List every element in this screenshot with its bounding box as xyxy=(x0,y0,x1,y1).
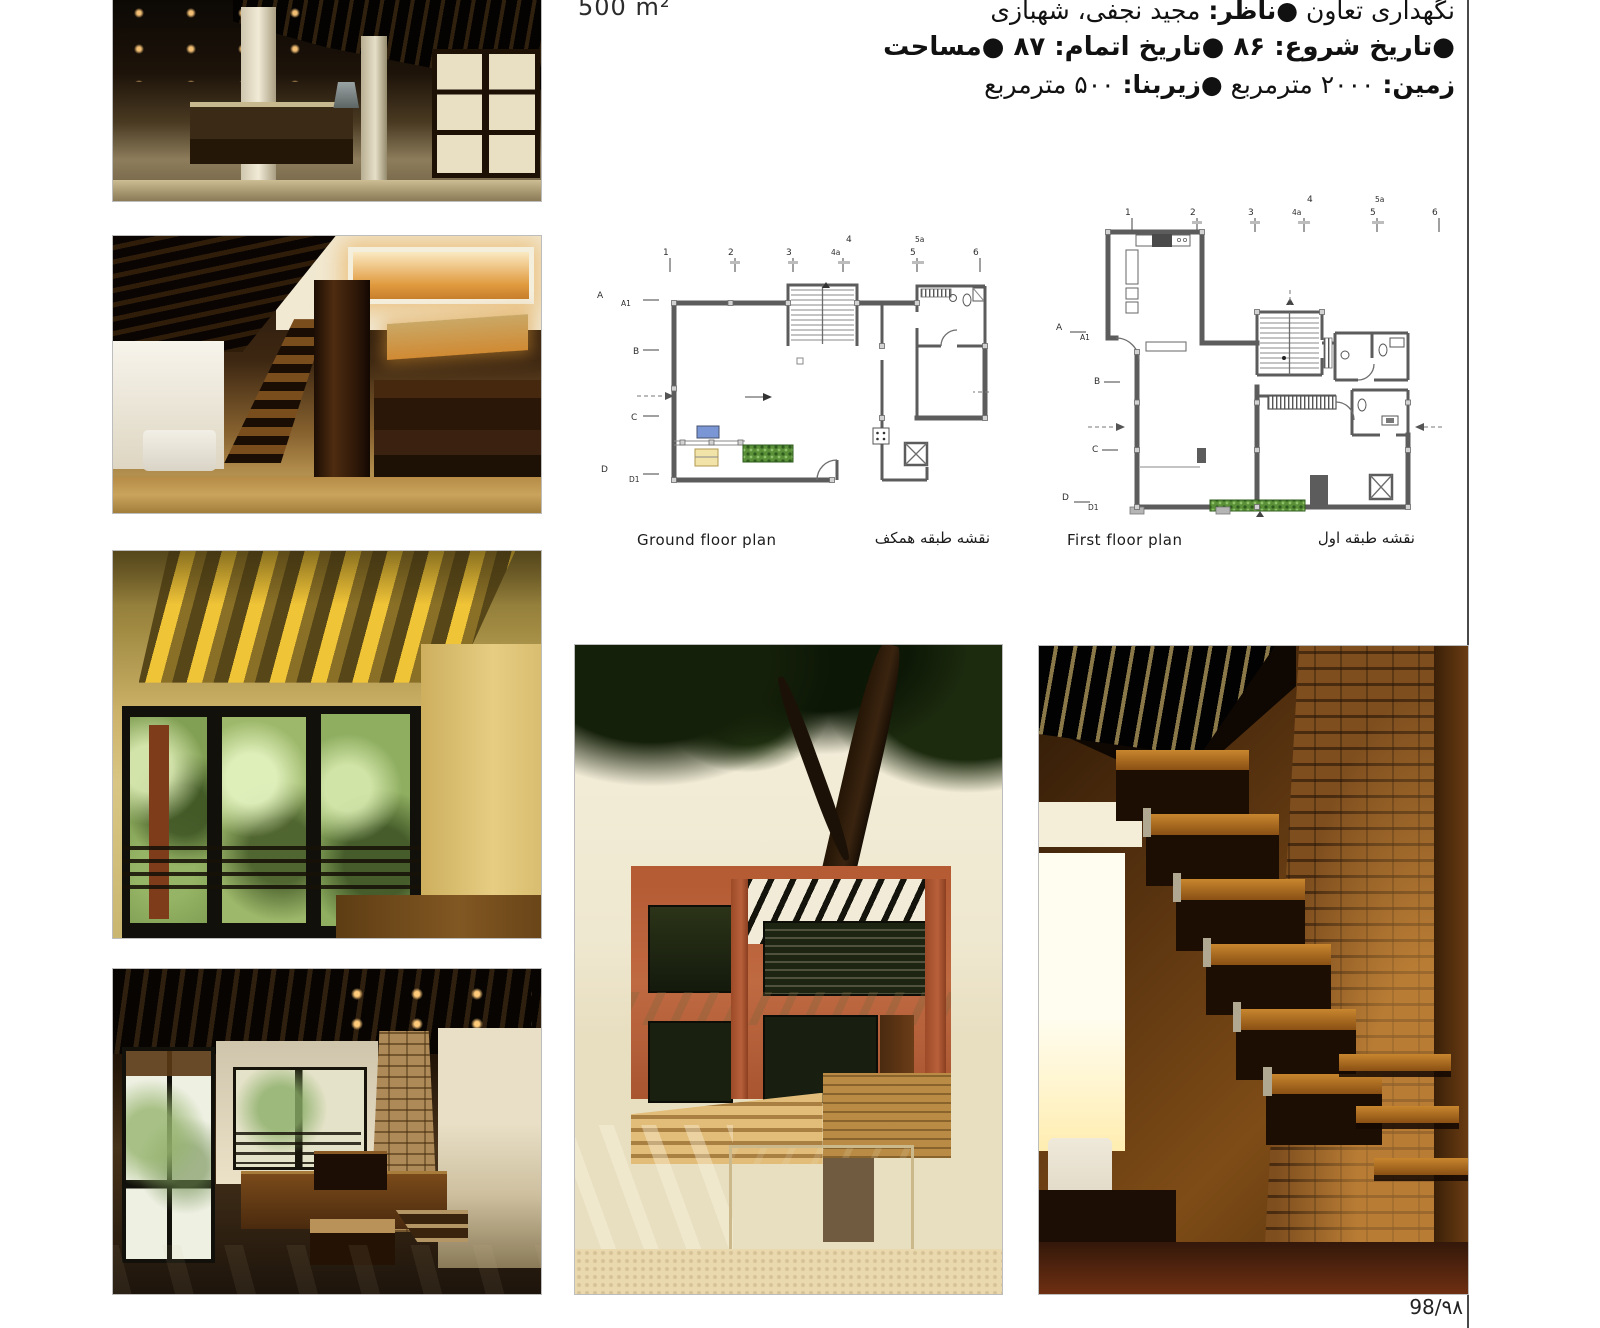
credits-line3-value2: ۵۰۰ مترمربع xyxy=(984,70,1122,99)
section-marker-right xyxy=(1415,423,1442,431)
wood-floor xyxy=(336,895,541,938)
grid-label: D1 xyxy=(1088,503,1099,512)
grid-ticks-top: 1 2 3 4a 4 5a 5 6 xyxy=(663,235,980,272)
planter xyxy=(743,445,793,462)
credits-line1-label: ●ناظر: xyxy=(1208,0,1298,25)
ac-unit xyxy=(143,430,216,472)
door-swing xyxy=(817,460,837,480)
balcony-railing xyxy=(122,837,422,895)
upper-window-left xyxy=(648,905,733,993)
ground-plan-caption-en: Ground floor plan xyxy=(637,531,777,549)
credits-line-3: زمین: ۲۰۰۰ مترمربع ●زیربنا: ۵۰۰ مترمربع xyxy=(990,66,1455,103)
upper-window-right xyxy=(763,921,929,996)
steel-tab xyxy=(1143,808,1152,837)
footing xyxy=(1216,507,1230,514)
kitchen-fixtures xyxy=(1116,234,1190,361)
ceiling-shadow xyxy=(113,551,541,605)
tree-canopy xyxy=(575,645,1002,866)
grid-label: 4 xyxy=(1307,195,1313,205)
steel-tab xyxy=(1173,873,1182,902)
credits-line1-names: مجید نجفی، شهبازی xyxy=(990,0,1208,25)
level-marker xyxy=(745,393,772,401)
stair-tread xyxy=(1176,879,1305,900)
column-marker xyxy=(797,358,803,364)
lower-window-left xyxy=(648,1021,733,1103)
grid-label: 3 xyxy=(786,248,792,258)
stair-tread xyxy=(1116,750,1249,771)
stair-riser xyxy=(1116,769,1249,821)
grid-ticks-left: A A1 B C D D1 xyxy=(597,291,674,484)
first-plan-caption-en: First floor plan xyxy=(1067,531,1182,549)
grid-ticks-top: 1 2 3 4a 4 5a 5 6 xyxy=(1125,195,1439,232)
photo-staircase-underside xyxy=(1038,645,1469,1295)
grid-label: 1 xyxy=(1125,208,1131,218)
grid-label: 5a xyxy=(1375,195,1384,204)
steel-tab xyxy=(1203,938,1212,967)
stair-riser xyxy=(1176,899,1305,951)
red-column-right xyxy=(925,879,946,1100)
glossy-floor xyxy=(113,1245,541,1294)
grid-label: 5 xyxy=(910,248,916,258)
wood-cabinet xyxy=(374,380,541,480)
floor xyxy=(113,180,541,201)
grid-label: 5 xyxy=(1370,208,1376,218)
grid-label: A1 xyxy=(621,299,631,308)
kitchen-cabinets xyxy=(190,102,353,164)
grid-label: B xyxy=(633,347,639,357)
photo-kitchen-interior xyxy=(112,0,542,202)
pool-reflection xyxy=(823,1158,874,1242)
ground-plan-caption-fa: نقشه طبقه همکف xyxy=(850,529,990,547)
grid-label: 5a xyxy=(915,235,924,244)
walls xyxy=(1108,232,1408,507)
grid-label: 3 xyxy=(1248,208,1254,218)
bright-window xyxy=(1039,853,1125,1151)
first-plan-caption-fa: نقشه طبقه اول xyxy=(1285,529,1415,547)
first-floor-plan-drawing: 1 2 3 4a 4 5a 5 6 A A1 B C D D1 xyxy=(1040,190,1445,520)
left-window xyxy=(122,1047,216,1263)
stair-tread xyxy=(1266,1074,1382,1095)
cove-light-upper xyxy=(348,247,533,304)
column-markers xyxy=(672,301,988,483)
grid-label: 6 xyxy=(973,248,979,258)
grid-label: 4a xyxy=(831,248,840,257)
stair-tread xyxy=(1146,814,1279,835)
blue-furniture xyxy=(697,426,719,438)
column-right xyxy=(361,36,387,201)
stair-tread xyxy=(1206,944,1330,965)
photo-exterior-pool xyxy=(574,644,1003,1295)
stair-tread xyxy=(1236,1009,1356,1030)
stair-riser xyxy=(1206,964,1330,1016)
right-wall xyxy=(421,644,541,938)
wood-floor xyxy=(113,477,541,513)
staircase xyxy=(791,282,854,344)
grid-label: 1 xyxy=(663,248,669,258)
photo-stone-wall-lounge xyxy=(112,968,542,1295)
grid-label: A xyxy=(597,291,604,301)
grid-label: D1 xyxy=(629,475,640,484)
project-credits: نگهداری تعاون ●ناظر: مجید نجفی، شهبازی ●… xyxy=(990,0,1455,103)
credits-line1-pre: نگهداری تعاون xyxy=(1298,0,1455,25)
grid-label: 4 xyxy=(846,235,852,245)
grid-label: 2 xyxy=(728,248,734,258)
credits-line3-label1: زمین: xyxy=(1382,70,1455,99)
staircase xyxy=(1260,290,1319,375)
credits-line3-value1: ۲۰۰۰ مترمربع xyxy=(1223,70,1383,99)
steel-tab xyxy=(1233,1002,1242,1031)
grid-label: C xyxy=(631,413,637,423)
grid-label: B xyxy=(1094,377,1100,387)
pavement-bottom xyxy=(575,1249,1002,1294)
area-label: 500 m² xyxy=(578,0,670,21)
grid-label: A1 xyxy=(1080,333,1090,342)
photo-beam-ceiling-room xyxy=(112,550,542,939)
grid-label: A xyxy=(1056,323,1063,333)
window xyxy=(432,49,540,178)
grid-label: D xyxy=(601,465,608,475)
lower-stair-tread xyxy=(1374,1158,1468,1175)
ground-floor-plan-drawing: 1 2 3 4a 4 5a 5 6 A A1 B C D D1 xyxy=(585,228,1000,520)
magazine-page: 500 m² نگهداری تعاون ●ناظر: مجید نجفی، ش… xyxy=(0,0,1600,1328)
grid-label: 4a xyxy=(1292,208,1301,217)
steel-tab xyxy=(1263,1067,1272,1096)
walls xyxy=(674,285,985,480)
wood-platform xyxy=(1039,1242,1468,1294)
lower-stair-tread xyxy=(1339,1054,1451,1071)
island-box xyxy=(873,428,889,444)
credits-line-1: نگهداری تعاون ●ناظر: مجید نجفی، شهبازی xyxy=(990,0,1455,29)
wood-edge-panel xyxy=(1434,646,1468,1294)
page-number: 98/٩٨ xyxy=(1393,1295,1463,1319)
credits-line3-label2: ●زیربنا: xyxy=(1123,70,1223,99)
pier xyxy=(1197,448,1206,463)
grid-ticks-left: A A1 B C D D1 xyxy=(1056,323,1125,512)
ceiling-spotlights xyxy=(113,0,327,82)
stair-riser xyxy=(1146,834,1279,886)
closet-band xyxy=(1268,396,1336,409)
bathroom-fixtures xyxy=(921,288,984,346)
grid-label: 2 xyxy=(1190,208,1196,218)
grid-label: D xyxy=(1062,493,1069,503)
red-column-left xyxy=(731,879,748,1100)
pier xyxy=(1310,475,1328,507)
low-table xyxy=(314,1151,387,1190)
grid-label: 6 xyxy=(1432,208,1438,218)
lower-stair-tread xyxy=(1356,1106,1459,1123)
radiator xyxy=(1324,338,1332,368)
credits-line-2: ●تاریخ شروع: ۸۶ ●تاریخ اتمام: ۸۷ ●مساحت xyxy=(990,29,1455,66)
grid-label: C xyxy=(1092,445,1098,455)
photo-stair-lounge xyxy=(112,235,542,514)
